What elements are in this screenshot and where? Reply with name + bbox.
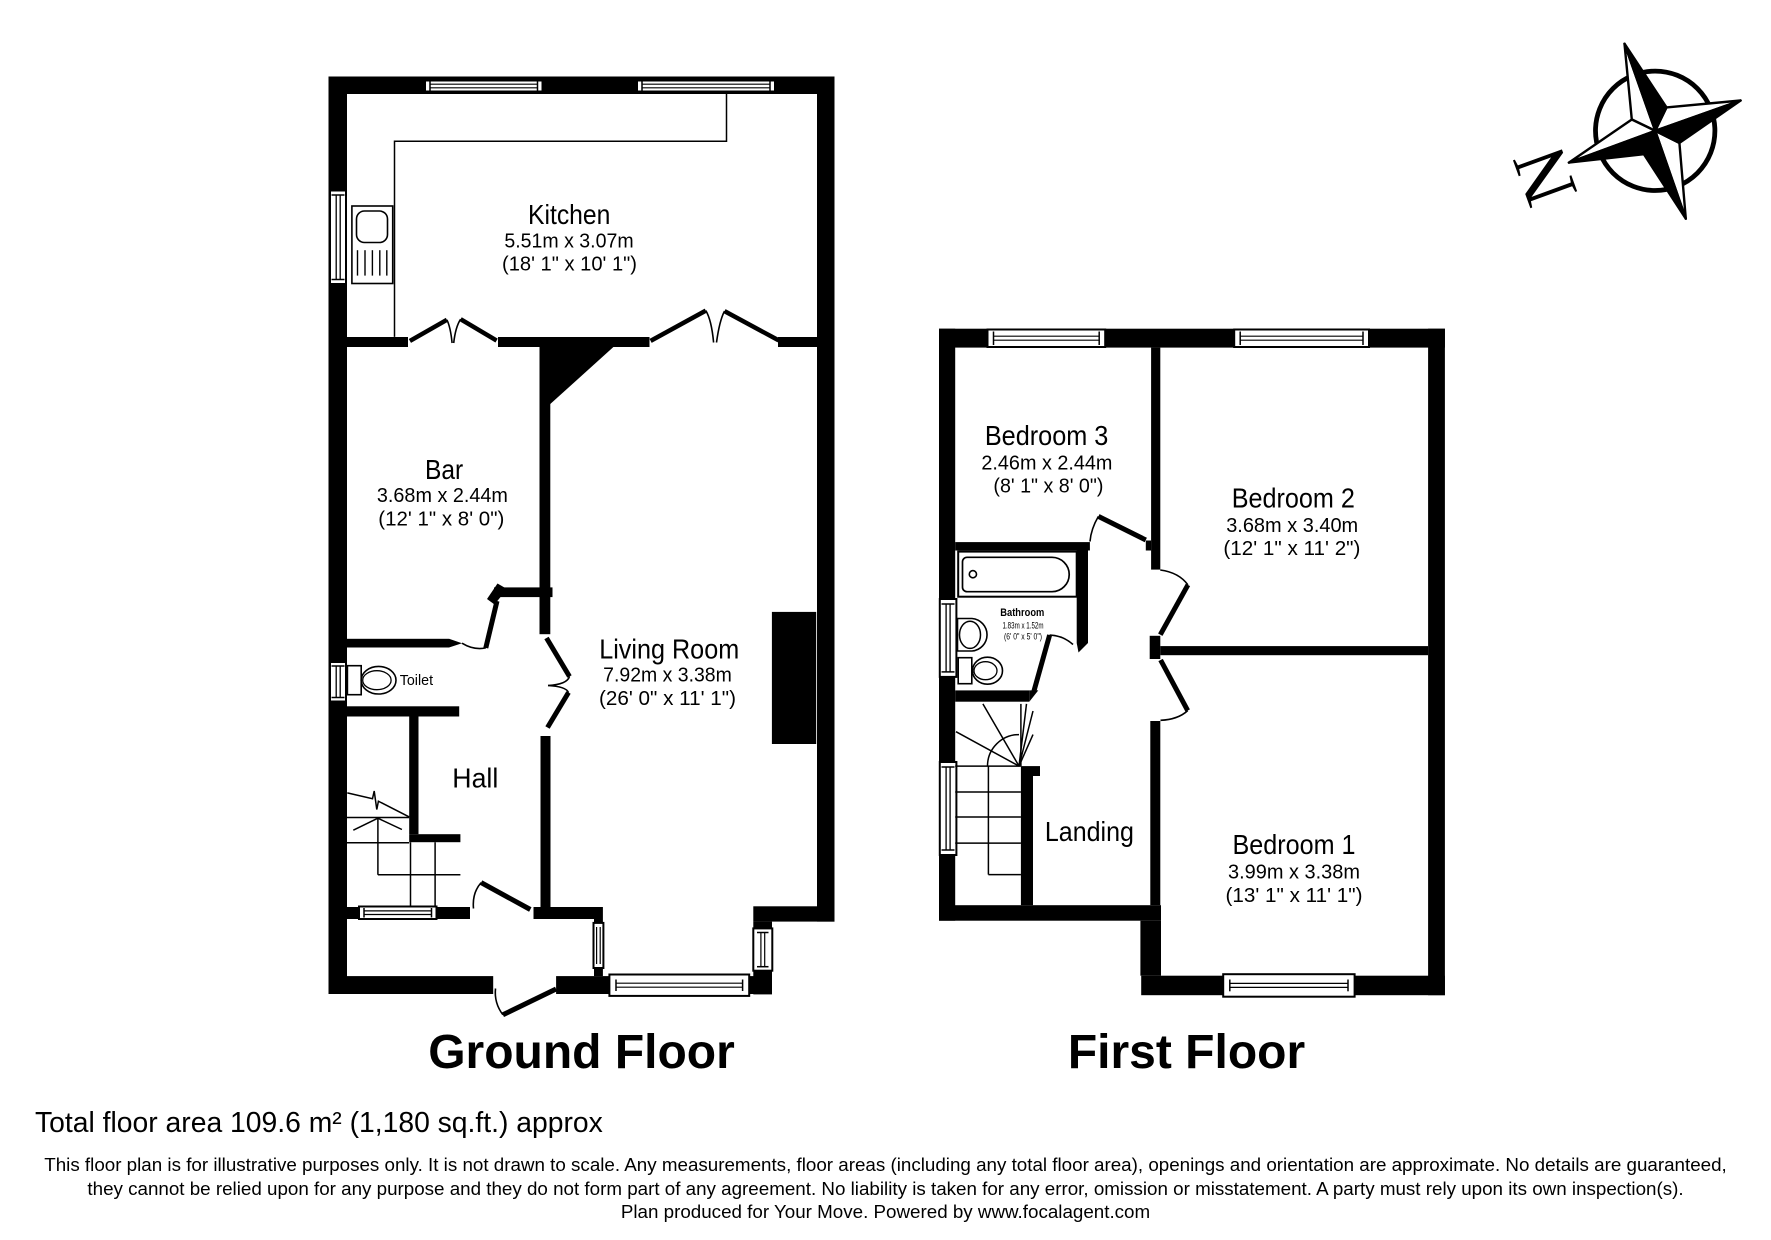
svg-text:(18' 1" x 10' 1"): (18' 1" x 10' 1") [502, 252, 637, 275]
svg-text:3.68m x 2.44m: 3.68m x 2.44m [377, 484, 508, 507]
svg-text:(8' 1" x 8' 0"): (8' 1" x 8' 0") [993, 475, 1103, 498]
svg-text:Total floor area 109.6 m² (1,1: Total floor area 109.6 m² (1,180 sq.ft.)… [35, 1106, 603, 1138]
svg-text:they cannot be relied upon for: they cannot be relied upon for any purpo… [87, 1178, 1683, 1199]
svg-text:(6' 0" x 5' 0"): (6' 0" x 5' 0") [1004, 632, 1042, 642]
svg-text:Plan produced for Your Move. P: Plan produced for Your Move. Powered by … [621, 1201, 1150, 1222]
svg-text:Landing: Landing [1045, 816, 1134, 847]
svg-text:5.51m x 3.07m: 5.51m x 3.07m [504, 229, 633, 252]
svg-text:(12' 1" x 8' 0"): (12' 1" x 8' 0") [378, 507, 504, 530]
svg-text:Bar: Bar [425, 454, 463, 485]
svg-text:Bedroom 1: Bedroom 1 [1233, 829, 1356, 860]
svg-text:Bathroom: Bathroom [1000, 607, 1044, 619]
svg-text:Kitchen: Kitchen [528, 199, 610, 230]
svg-text:First Floor: First Floor [1068, 1026, 1305, 1079]
svg-text:2.46m x 2.44m: 2.46m x 2.44m [981, 452, 1112, 475]
svg-text:(26' 0" x 11' 1"): (26' 0" x 11' 1") [599, 687, 736, 710]
svg-text:3.99m x 3.38m: 3.99m x 3.38m [1228, 861, 1360, 884]
svg-text:Hall: Hall [452, 763, 498, 794]
svg-text:Ground Floor: Ground Floor [428, 1026, 735, 1079]
svg-text:Bedroom 2: Bedroom 2 [1232, 482, 1355, 513]
svg-text:1.83m x 1.52m: 1.83m x 1.52m [1003, 621, 1044, 631]
svg-text:3.68m x 3.40m: 3.68m x 3.40m [1226, 514, 1358, 537]
svg-text:(12' 1" x 11' 2"): (12' 1" x 11' 2") [1223, 537, 1360, 560]
svg-text:This floor plan is for illustr: This floor plan is for illustrative purp… [44, 1154, 1727, 1175]
svg-text:Toilet: Toilet [400, 672, 434, 689]
svg-text:Living Room: Living Room [599, 633, 739, 664]
svg-text:Bedroom 3: Bedroom 3 [985, 420, 1109, 451]
svg-text:(13' 1" x 11' 1"): (13' 1" x 11' 1") [1226, 884, 1363, 907]
svg-text:7.92m x 3.38m: 7.92m x 3.38m [603, 664, 732, 687]
